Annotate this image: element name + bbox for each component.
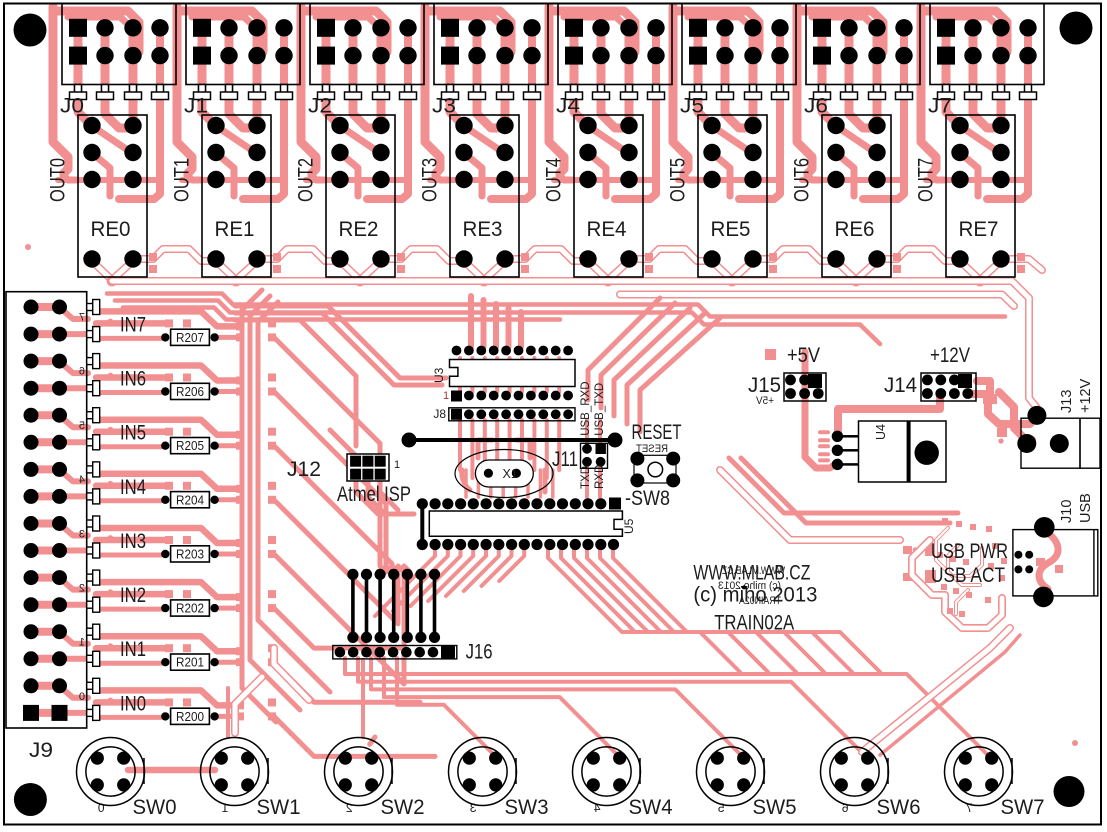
svg-text:1: 1 — [79, 637, 85, 649]
svg-text:RE1: RE1 — [215, 218, 255, 241]
svg-text:J3: J3 — [432, 95, 456, 118]
svg-text:IN1: IN1 — [120, 638, 146, 661]
svg-text:-SW8: -SW8 — [625, 487, 670, 510]
svg-text:Atmel ISP: Atmel ISP — [337, 483, 411, 506]
svg-text:J4: J4 — [556, 95, 580, 118]
svg-text:R200: R200 — [176, 710, 204, 724]
svg-text:USB_TXD: USB_TXD — [594, 383, 606, 436]
svg-text:0: 0 — [79, 691, 85, 703]
svg-text:U4: U4 — [874, 424, 888, 440]
svg-text:4: 4 — [79, 474, 85, 486]
svg-text:SW2: SW2 — [381, 796, 425, 819]
svg-text:R203: R203 — [176, 548, 204, 562]
svg-text:RE2: RE2 — [339, 218, 379, 241]
svg-text:1: 1 — [443, 390, 449, 402]
svg-text:SW5: SW5 — [753, 796, 797, 819]
svg-text:J2: J2 — [308, 95, 332, 118]
svg-text:OUT6: OUT6 — [791, 158, 814, 202]
svg-text:OUT0: OUT0 — [47, 158, 70, 202]
svg-text:6: 6 — [79, 366, 85, 378]
svg-text:USB ACT: USB ACT — [931, 564, 1005, 587]
svg-text:SW0: SW0 — [133, 796, 177, 819]
svg-text:J8: J8 — [433, 407, 446, 421]
svg-text:WWW.MLAB.CZ: WWW.MLAB.CZ — [693, 562, 810, 585]
svg-text:J14: J14 — [884, 374, 917, 397]
svg-text:OUT2: OUT2 — [295, 158, 318, 202]
svg-text:RE0: RE0 — [91, 218, 131, 241]
svg-text:SW7: SW7 — [1001, 796, 1045, 819]
svg-text:SW6: SW6 — [877, 796, 921, 819]
svg-text:OUT7: OUT7 — [915, 158, 938, 202]
svg-text:RE3: RE3 — [463, 218, 503, 241]
svg-text:2: 2 — [79, 583, 85, 595]
svg-text:U3: U3 — [432, 367, 446, 383]
svg-text:J16: J16 — [466, 641, 493, 664]
svg-text:RE4: RE4 — [587, 218, 627, 241]
svg-text:IN0: IN0 — [120, 692, 146, 715]
svg-text:+5V: +5V — [787, 344, 820, 367]
svg-text:J7: J7 — [928, 95, 952, 118]
svg-text:1: 1 — [394, 459, 400, 471]
svg-text:IN4: IN4 — [120, 476, 146, 499]
svg-text:USB PWR: USB PWR — [931, 540, 1008, 563]
svg-text:5: 5 — [79, 420, 85, 432]
svg-text:SW1: SW1 — [257, 796, 301, 819]
svg-text:R204: R204 — [176, 493, 204, 507]
svg-text:J0: J0 — [60, 95, 84, 118]
svg-text:U5: U5 — [622, 518, 636, 534]
svg-text:7: 7 — [79, 312, 85, 324]
svg-text:J5: J5 — [680, 95, 704, 118]
svg-text:J6: J6 — [804, 95, 828, 118]
svg-text:R205: R205 — [176, 439, 204, 453]
svg-text:SW4: SW4 — [629, 796, 673, 819]
svg-text:RESET: RESET — [632, 421, 682, 444]
svg-text:R206: R206 — [176, 385, 204, 399]
svg-text:RE5: RE5 — [711, 218, 751, 241]
svg-text:(c) miho 2013: (c) miho 2013 — [693, 584, 817, 607]
svg-text:SW3: SW3 — [505, 796, 549, 819]
svg-text:IN3: IN3 — [120, 530, 146, 553]
svg-text:J10: J10 — [1059, 500, 1075, 523]
svg-text:IN7: IN7 — [120, 313, 146, 336]
svg-text:IN2: IN2 — [120, 584, 146, 607]
svg-text:IN5: IN5 — [120, 422, 146, 445]
svg-text:OUT5: OUT5 — [667, 158, 690, 202]
svg-text:R201: R201 — [176, 656, 204, 670]
svg-text:R202: R202 — [176, 602, 204, 616]
svg-text:J13: J13 — [1059, 390, 1075, 413]
svg-text:TRAIN02A: TRAIN02A — [714, 612, 794, 635]
svg-text:+12V: +12V — [1078, 378, 1094, 413]
svg-text:J9: J9 — [29, 739, 53, 762]
svg-text:OUT3: OUT3 — [419, 158, 442, 202]
svg-text:OUT1: OUT1 — [171, 158, 194, 202]
svg-text:USB_RXD: USB_RXD — [580, 381, 592, 435]
svg-text:IN6: IN6 — [120, 368, 146, 391]
svg-text:J11: J11 — [552, 448, 578, 471]
svg-text:X1: X1 — [503, 467, 518, 481]
svg-text:USB: USB — [1078, 493, 1094, 523]
svg-text:J15: J15 — [748, 374, 781, 397]
svg-text:J1: J1 — [184, 95, 208, 118]
svg-text:RXD: RXD — [594, 465, 606, 489]
svg-text:RE7: RE7 — [959, 218, 999, 241]
svg-text:OUT4: OUT4 — [543, 158, 566, 202]
svg-text:RE6: RE6 — [835, 218, 875, 241]
svg-text:3: 3 — [79, 528, 85, 540]
svg-text:+12V: +12V — [930, 344, 970, 367]
svg-text:TXD: TXD — [580, 466, 592, 489]
svg-text:R207: R207 — [176, 331, 204, 345]
svg-text:J12: J12 — [287, 458, 321, 481]
